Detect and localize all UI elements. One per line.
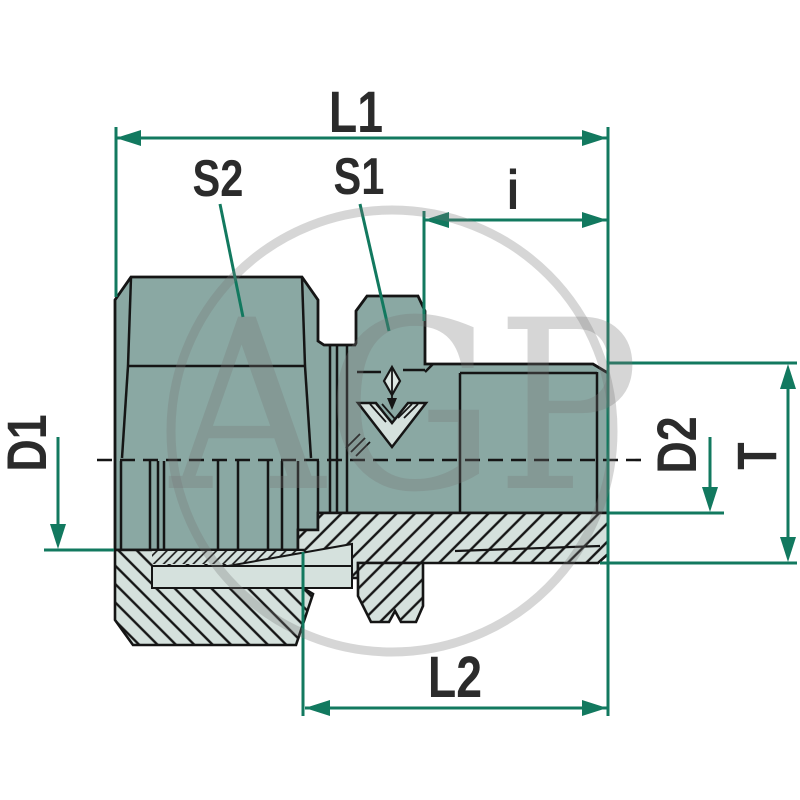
dim-label-d1: D1 (0, 414, 55, 471)
arrow-i-right (582, 212, 607, 228)
watermark-text: AGP (168, 271, 640, 544)
arrow-t-down (780, 537, 796, 562)
arrow-l1-right (582, 130, 607, 146)
drawing-canvas: AGP (0, 0, 800, 800)
dim-label-l2: L2 (428, 649, 482, 707)
arrow-l2-left (305, 700, 330, 716)
arrow-d2-down (702, 487, 718, 512)
tube-wall (152, 566, 352, 588)
fitting-technical-drawing: AGP L1 S2 S1 i D1 D2 T L2 (0, 0, 800, 800)
arrow-d1-down (50, 524, 66, 549)
arrow-l1-left (116, 130, 141, 146)
dim-label-s2: S2 (193, 153, 244, 205)
hex-section-hatch (358, 563, 423, 622)
dim-label-t: T (729, 442, 785, 469)
dim-label-l1: L1 (329, 84, 383, 142)
arrow-l2-right (582, 700, 607, 716)
dim-label-s1: S1 (334, 151, 385, 203)
dim-label-i: i (507, 162, 519, 218)
arrow-t-up (780, 364, 796, 389)
dim-label-d2: D2 (649, 416, 705, 473)
